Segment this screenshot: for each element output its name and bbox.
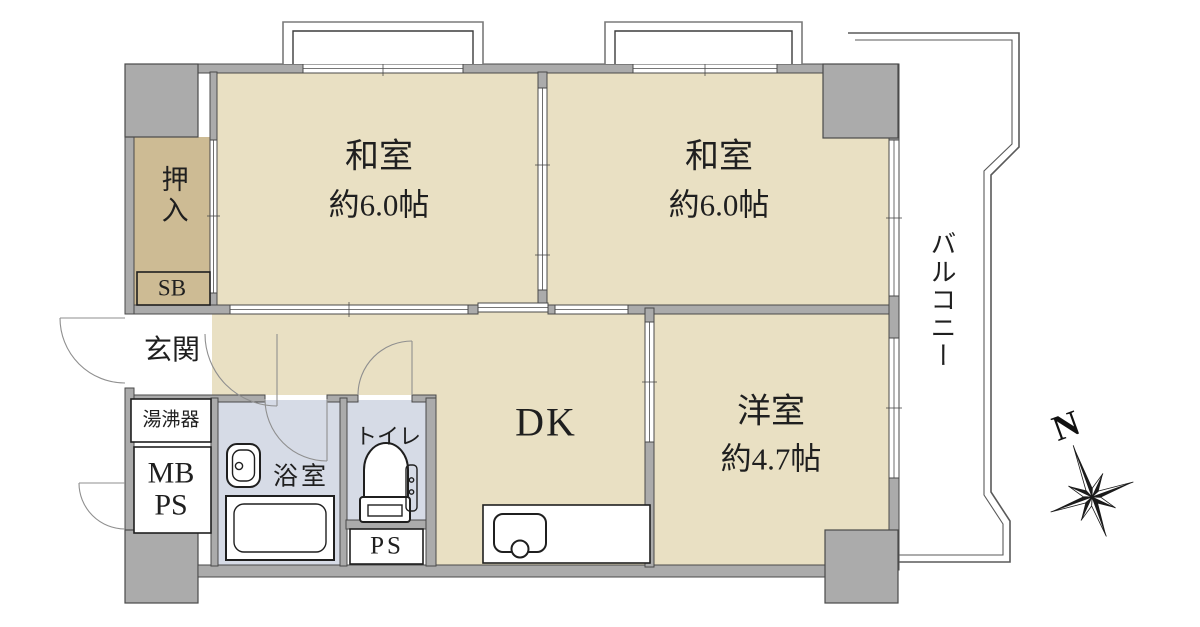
floorplan-canvas: N 和室 約6.0帖 和室 約6.0帖 洋室 約4.7帖 DK 玄関 押入 SB… xyxy=(0,0,1200,627)
entrance-door-arc xyxy=(60,318,125,383)
bay-windows xyxy=(283,22,802,64)
compass-rose: N xyxy=(1018,392,1148,552)
kitchen-counter xyxy=(483,505,650,563)
oshiire-label: 押入 xyxy=(157,165,186,227)
mb-ps-label: MB PS xyxy=(148,458,195,523)
column-top-left xyxy=(125,64,198,137)
yoshitsu-size: 約4.7帖 xyxy=(721,442,822,475)
room-floors xyxy=(134,72,890,566)
washitsu-left-name: 和室 xyxy=(345,140,413,177)
mb-door-arc xyxy=(79,483,125,529)
sb-label: SB xyxy=(158,277,186,302)
washitsu-left-size: 約6.0帖 xyxy=(329,188,430,221)
column-top-right xyxy=(823,64,898,138)
dk-label: DK xyxy=(515,400,577,443)
ps-label: PS xyxy=(370,533,404,560)
compass-north-label: N xyxy=(1047,402,1085,448)
column-bottom-left xyxy=(125,530,198,603)
bathtub-icon xyxy=(226,496,334,560)
washitsu-right-name: 和室 xyxy=(685,140,753,177)
yoshitsu-floor xyxy=(654,308,890,566)
genkan-label: 玄関 xyxy=(144,336,200,366)
column-bottom-right xyxy=(825,530,898,603)
bay-window-right xyxy=(605,22,802,64)
floorplan-drawing: N xyxy=(0,0,1200,627)
balcony-label: バルコニー xyxy=(927,230,955,370)
bay-window-left xyxy=(283,22,483,64)
bathroom-label: 浴室 xyxy=(273,464,329,491)
mb-label: MB xyxy=(148,458,195,490)
ps-shaft-label: PS xyxy=(148,490,195,522)
bath-sink-icon xyxy=(227,444,260,487)
toilet-label: トイレ xyxy=(355,425,421,449)
yoshitsu-name: 洋室 xyxy=(737,395,805,432)
water-heater-label: 湯沸器 xyxy=(142,411,199,432)
washitsu-right-size: 約6.0帖 xyxy=(669,188,770,221)
